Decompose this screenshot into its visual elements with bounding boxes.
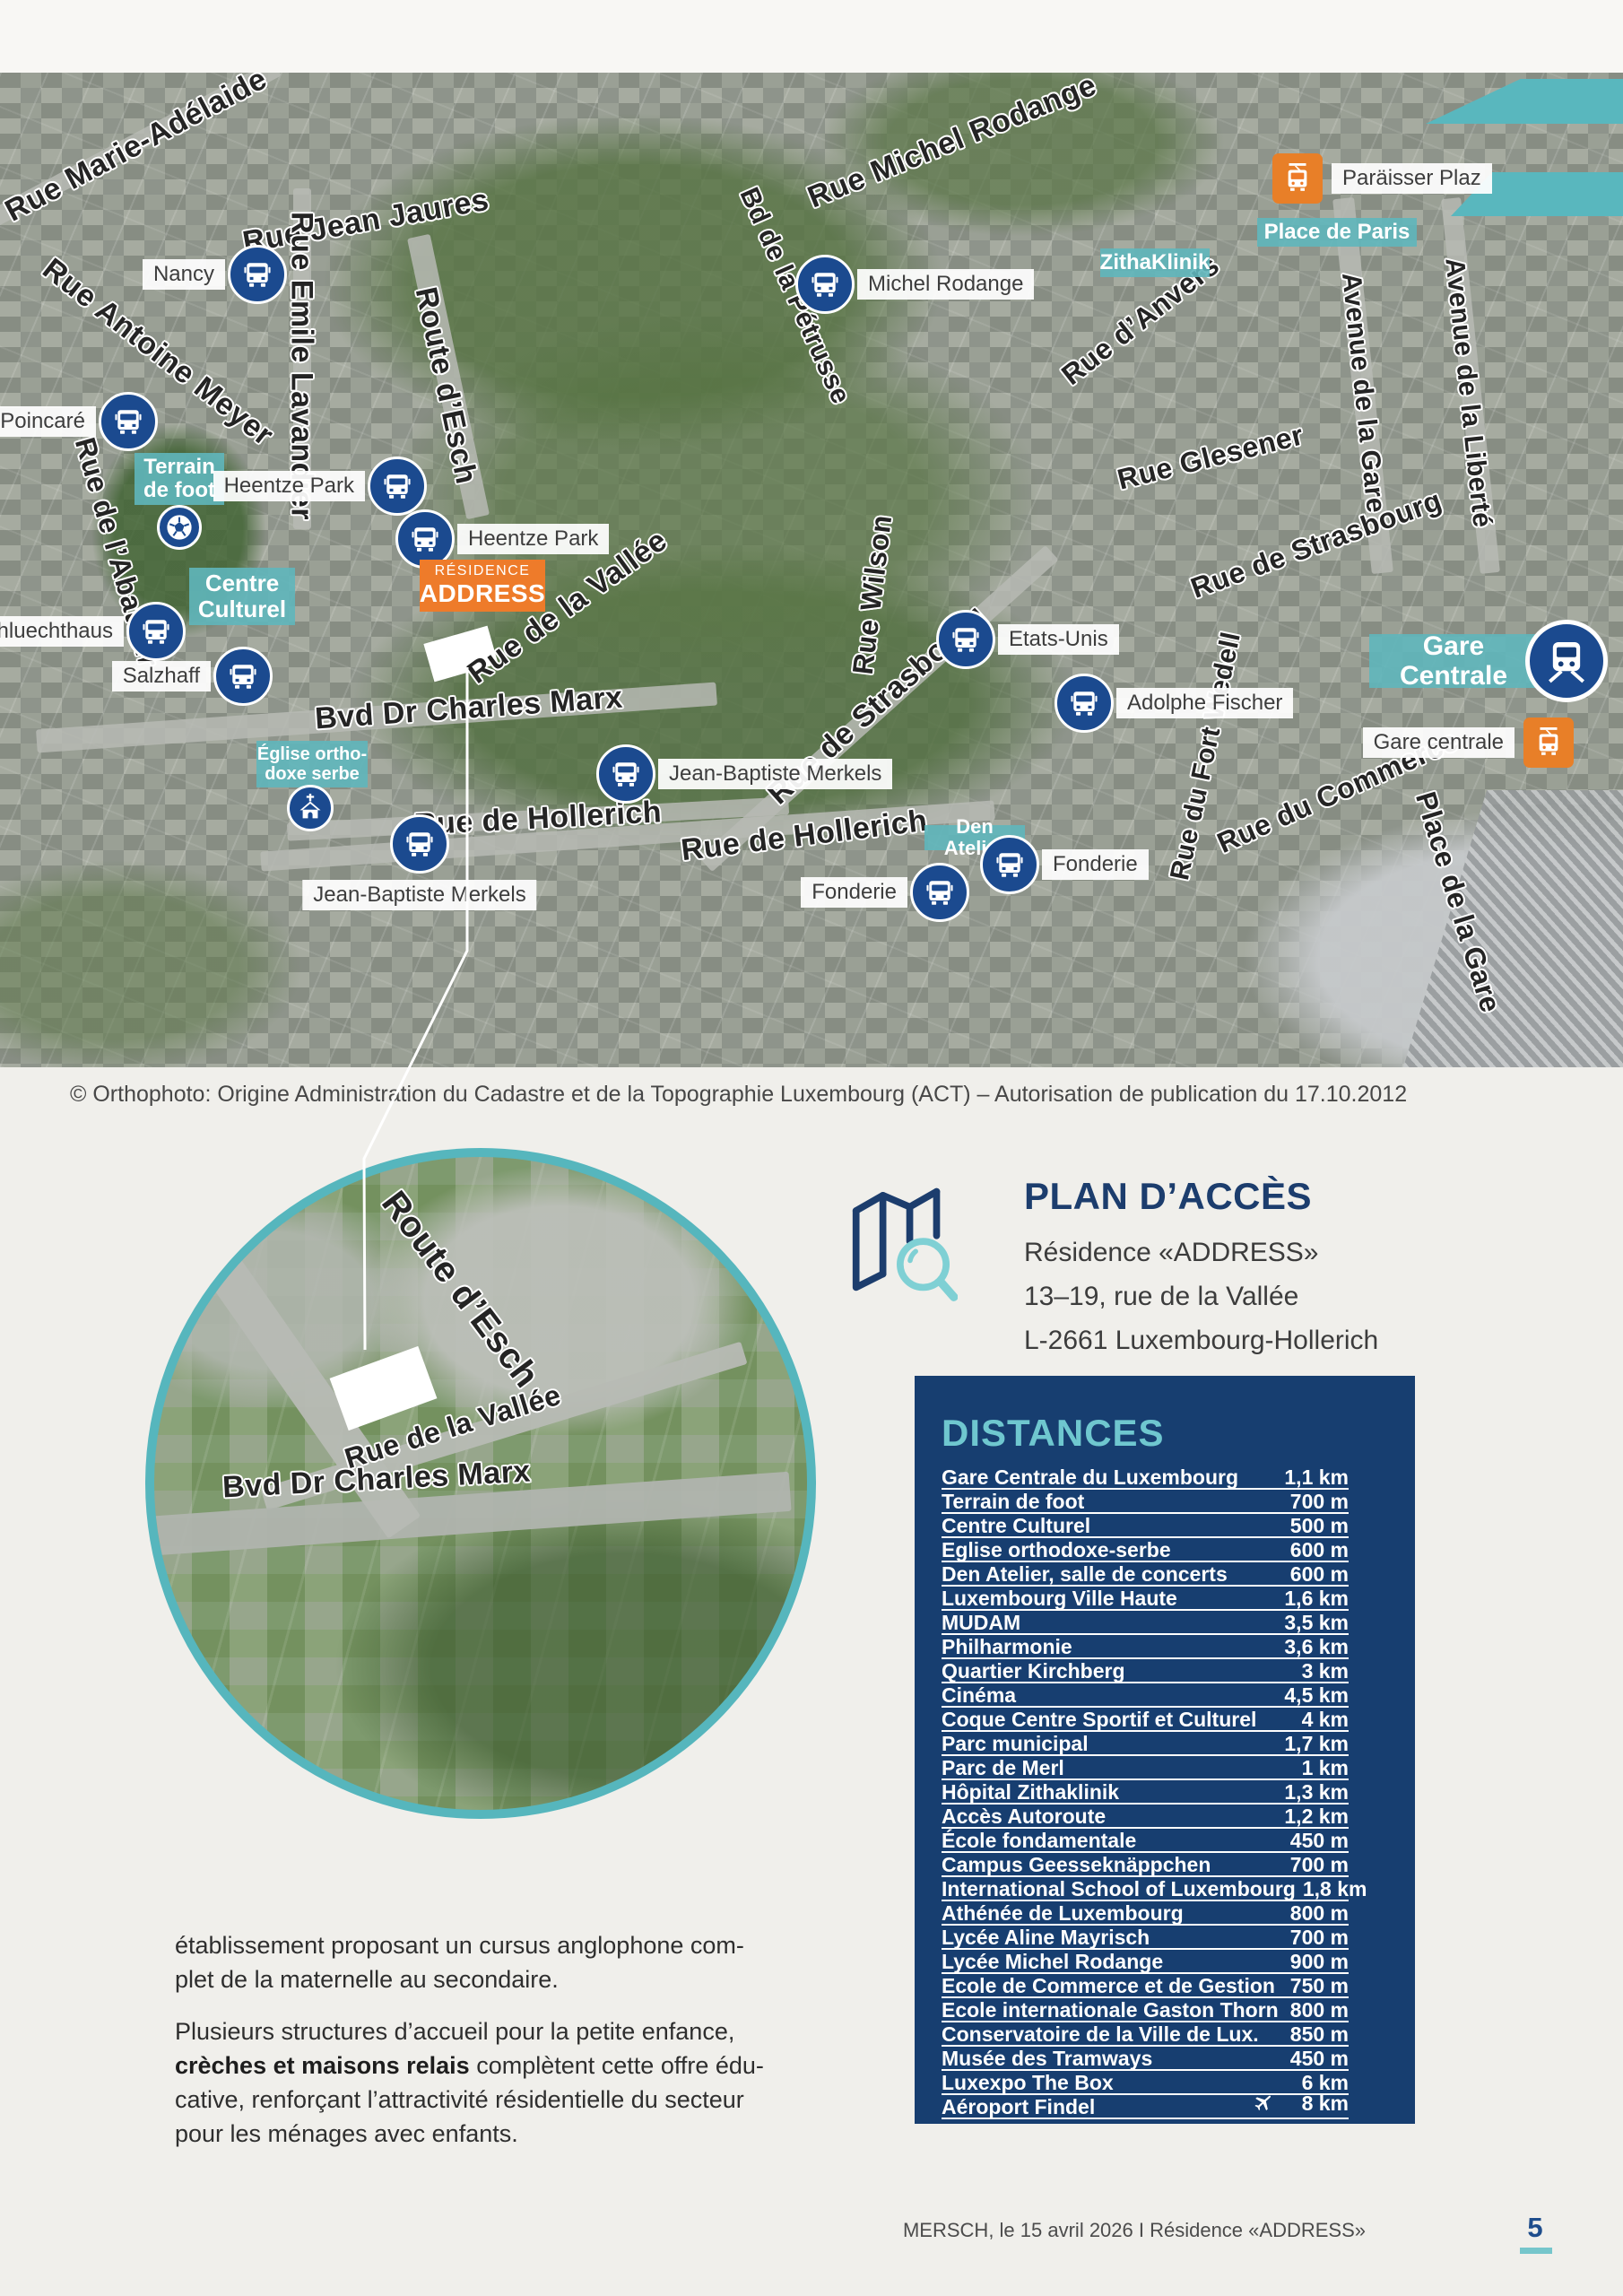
distances-panel: DISTANCES Gare Centrale du Luxembourg1,1… xyxy=(915,1376,1415,2124)
folded-map-icon xyxy=(846,1177,958,1307)
inset-zoom-map: Route d’EschRue de la ValléeBvd Dr Charl… xyxy=(145,1148,816,1819)
distance-row: International School of Luxembourg1,8 km xyxy=(942,1877,1349,1901)
distance-label: Luxexpo The Box xyxy=(942,2072,1114,2093)
church-icon xyxy=(294,792,326,824)
bus-stop-icon xyxy=(126,602,186,661)
address-line-residence: Résidence «ADDRESS» xyxy=(1024,1231,1378,1274)
distance-value: 700 m xyxy=(1290,1854,1349,1875)
stop-label: Nancy xyxy=(143,259,225,290)
brochure-page: RÉSIDENCE ADDRESS Rue Marie-AdélaideRue … xyxy=(0,0,1623,2296)
area-label-line: doxe serbe xyxy=(265,764,360,784)
bus-stop-icon xyxy=(99,392,158,451)
distance-label: Coque Centre Sportif et Culturel xyxy=(942,1709,1256,1730)
distances-table: Gare Centrale du Luxembourg1,1 kmTerrain… xyxy=(942,1465,1349,2119)
distance-row: Quartier Kirchberg3 km xyxy=(942,1659,1349,1683)
distance-row: Parc municipal1,7 km xyxy=(942,1732,1349,1756)
address-line-street: 13–19, rue de la Vallée xyxy=(1024,1274,1378,1318)
distance-row: Aéroport Findel 8 km xyxy=(942,2095,1349,2119)
distance-row: Terrain de foot700 m xyxy=(942,1490,1349,1514)
distance-value: 600 m xyxy=(1290,1563,1349,1585)
page-top-margin xyxy=(0,0,1623,73)
distance-label: Centre Culturel xyxy=(942,1515,1090,1536)
street-label-rue-jean-jaures: Rue Jean Jaures xyxy=(240,183,491,261)
bus-icon xyxy=(404,828,436,860)
teal-decor-shape xyxy=(1426,79,1623,124)
bus-icon xyxy=(950,623,982,656)
distance-label: Conservatoire de la Ville de Lux. xyxy=(942,2023,1259,2045)
tram-stop-icon xyxy=(1523,717,1574,768)
distance-value: 1,6 km xyxy=(1284,1587,1349,1609)
distance-label: Den Atelier, salle de concerts xyxy=(942,1563,1228,1585)
bus-icon xyxy=(112,405,144,438)
area-label-line: Terrain xyxy=(143,456,215,479)
distance-value: 3 km xyxy=(1302,1660,1349,1682)
bus-icon xyxy=(381,470,413,502)
distance-value: 1,8 km xyxy=(1303,1878,1367,1900)
distance-row: Lycée Aline Mayrisch700 m xyxy=(942,1926,1349,1950)
distance-label: Aéroport Findel xyxy=(942,2096,1095,2118)
area-label-centre-culturel: CentreCulturel xyxy=(189,568,295,625)
distance-label: Terrain de foot xyxy=(942,1491,1084,1512)
distance-label: École fondamentale xyxy=(942,1830,1136,1851)
distance-label: International School of Luxembourg xyxy=(942,1878,1296,1900)
plan-acces-title: PLAN D’ACCÈS xyxy=(1024,1175,1312,1218)
paragraph-line: Plusieurs structures d’accueil pour la p… xyxy=(175,2014,785,2048)
distance-row: École fondamentale450 m xyxy=(942,1829,1349,1853)
street-label-rue-wilson: Rue Wilson xyxy=(846,513,899,676)
paragraph-gap xyxy=(175,1996,785,2014)
distance-label: Ecole internationale Gaston Thorn xyxy=(942,1999,1279,2021)
area-label-gare-centrale: Gare Centrale xyxy=(1369,634,1538,688)
street-label-rue-de-strasbourg: Rue de Strasbourg xyxy=(1186,483,1446,605)
airplane-icon xyxy=(1252,2091,1275,2118)
tram-icon xyxy=(1280,161,1315,196)
bus-icon xyxy=(227,660,259,692)
train-poi xyxy=(1525,620,1608,702)
plan-acces-address: Résidence «ADDRESS» 13–19, rue de la Val… xyxy=(1024,1231,1378,1362)
distance-row: Athénée de Luxembourg800 m xyxy=(942,1901,1349,1926)
distance-row: Gare Centrale du Luxembourg1,1 km xyxy=(942,1465,1349,1490)
residence-site-building-inset xyxy=(330,1346,438,1431)
distance-label: Luxembourg Ville Haute xyxy=(942,1587,1177,1609)
distance-value: 800 m xyxy=(1290,1999,1349,2021)
distance-label: Musée des Tramways xyxy=(942,2048,1152,2069)
stop-label: Paräisser Plaz xyxy=(1332,163,1492,194)
paragraph-line: plet de la maternelle au secondaire. xyxy=(175,1962,785,1996)
bus-icon xyxy=(809,268,841,300)
bus-stop-icon xyxy=(390,814,449,874)
distance-label: Parc municipal xyxy=(942,1733,1089,1754)
distance-value: 1,3 km xyxy=(1284,1781,1349,1803)
street-label-avenue-de-la-libert: Avenue de la Liberté xyxy=(1438,257,1497,529)
bold-phrase: crèches et maisons relais xyxy=(175,2052,470,2079)
stop-label: Michel Rodange xyxy=(857,269,1034,300)
distance-value: 1,2 km xyxy=(1284,1805,1349,1827)
distance-value: 850 m xyxy=(1290,2023,1349,2045)
area-label-line: Église ortho- xyxy=(257,744,367,764)
stop-label: Schluechthaus xyxy=(0,616,124,647)
distance-row: Accès Autoroute1,2 km xyxy=(942,1805,1349,1829)
distance-row: Centre Culturel500 m xyxy=(942,1514,1349,1538)
distance-value: 1,7 km xyxy=(1284,1733,1349,1754)
street-label-rue-michel-rodange: Rue Michel Rodange xyxy=(803,73,1102,215)
paragraph-line: établissement proposant un cursus anglop… xyxy=(175,1928,785,1962)
distances-title: DISTANCES xyxy=(942,1412,1349,1455)
distance-value: 700 m xyxy=(1290,1491,1349,1512)
distance-label: Lycée Aline Mayrisch xyxy=(942,1926,1150,1948)
street-label-rue-glesener: Rue Glesener xyxy=(1115,418,1307,496)
bus-icon xyxy=(1068,687,1100,719)
distance-row: Philharmonie3,6 km xyxy=(942,1635,1349,1659)
distance-row: Coque Centre Sportif et Culturel4 km xyxy=(942,1708,1349,1732)
distance-value: 700 m xyxy=(1290,1926,1349,1948)
stop-label: Heentze Park xyxy=(457,524,609,554)
paragraph-line: cative, renforçant l’attractivité réside… xyxy=(175,2083,785,2117)
distance-label: Ecole de Commerce et de Gestion xyxy=(942,1975,1275,1996)
bus-stop-icon xyxy=(910,863,969,922)
paragraph-line: crèches et maisons relais complètent cet… xyxy=(175,2048,785,2083)
bus-icon xyxy=(140,615,172,648)
distance-value: 600 m xyxy=(1290,1539,1349,1561)
stop-label: Gare centrale xyxy=(1363,727,1515,758)
distance-value: 800 m xyxy=(1290,1902,1349,1924)
distance-row: Parc de Merl1 km xyxy=(942,1756,1349,1780)
orthophoto-copyright: © Orthophoto: Origine Administration du … xyxy=(70,1082,1407,1108)
distance-value: 500 m xyxy=(1290,1515,1349,1536)
distance-row: Cinéma4,5 km xyxy=(942,1683,1349,1708)
street-label-bvd-dr-charles-marx: Bvd Dr Charles Marx xyxy=(314,681,624,737)
distance-label: Cinéma xyxy=(942,1684,1016,1706)
bus-stop-icon xyxy=(980,835,1039,894)
distance-value: 1,1 km xyxy=(1284,1466,1349,1488)
distance-row: Ecole de Commerce et de Gestion750 m xyxy=(942,1974,1349,1998)
distance-value: 750 m xyxy=(1290,1975,1349,1996)
distance-value: 450 m xyxy=(1290,1830,1349,1851)
tram-stop-icon xyxy=(1272,153,1323,204)
bus-stop-icon xyxy=(936,610,995,669)
distance-row: Lycée Michel Rodange900 m xyxy=(942,1950,1349,1974)
stop-label: Adolphe Fischer xyxy=(1116,688,1293,718)
page-number-tick xyxy=(1520,2248,1552,2254)
distance-row: Conservatoire de la Ville de Lux.850 m xyxy=(942,2022,1349,2047)
football-poi xyxy=(157,505,202,550)
church-poi xyxy=(287,785,334,831)
distance-row: Eglise orthodoxe-serbe600 m xyxy=(942,1538,1349,1562)
distance-row: Musée des Tramways450 m xyxy=(942,2047,1349,2071)
distance-value: 900 m xyxy=(1290,1951,1349,1972)
distance-value: 3,5 km xyxy=(1284,1612,1349,1633)
aerial-map: RÉSIDENCE ADDRESS Rue Marie-AdélaideRue … xyxy=(0,73,1623,1067)
street-label-rue-marie-ad-laide: Rue Marie-Adélaide xyxy=(0,73,273,229)
address-line-city: L-2661 Luxembourg-Hollerich xyxy=(1024,1318,1378,1362)
page-number: 5 xyxy=(1515,2212,1555,2244)
bus-icon xyxy=(610,758,642,790)
distance-row: Ecole internationale Gaston Thorn800 m xyxy=(942,1998,1349,2022)
bus-stop-icon xyxy=(213,647,273,706)
distance-row: Campus Geesseknäppchen700 m xyxy=(942,1853,1349,1877)
bus-stop-icon xyxy=(228,245,287,304)
street-label-avenue-de-la-gare: Avenue de la Gare xyxy=(1335,271,1391,514)
area-label-place-de-paris: Place de Paris xyxy=(1257,218,1417,247)
residence-address-label: RÉSIDENCE ADDRESS xyxy=(420,560,545,612)
area-label-line: Gare Centrale xyxy=(1369,631,1538,691)
tram-icon xyxy=(1531,725,1567,761)
bus-icon xyxy=(994,848,1026,881)
distance-label: Eglise orthodoxe-serbe xyxy=(942,1539,1171,1561)
distance-value: 1 km xyxy=(1302,1757,1349,1779)
distance-label: Lycée Michel Rodange xyxy=(942,1951,1163,1972)
distance-label: Athénée de Luxembourg xyxy=(942,1902,1184,1924)
stop-label: Fonderie xyxy=(801,877,907,908)
residence-label-line2: ADDRESS xyxy=(420,579,545,608)
airplane-icon xyxy=(1252,2091,1275,2114)
distance-label: Hôpital Zithaklinik xyxy=(942,1781,1119,1803)
bus-stop-icon xyxy=(1055,674,1114,733)
area-label-eglise-orthodoxe-serbe: Église ortho-doxe serbe xyxy=(256,741,368,787)
distance-row: Den Atelier, salle de concerts600 m xyxy=(942,1562,1349,1587)
stop-label: Poincaré xyxy=(0,406,96,437)
bus-icon xyxy=(924,876,956,909)
distance-value: 4 km xyxy=(1302,1709,1349,1730)
footer-text: MERSCH, le 15 avril 2026 I Résidence «AD… xyxy=(903,2219,1366,2242)
train-icon xyxy=(1541,636,1592,686)
football-icon xyxy=(162,510,196,544)
stop-label: Jean-Baptiste Merkels xyxy=(658,759,892,789)
residence-label-line1: RÉSIDENCE xyxy=(435,563,531,579)
street-label-route-d-esch: Route d’Esch xyxy=(408,284,484,487)
distance-row: Hôpital Zithaklinik1,3 km xyxy=(942,1780,1349,1805)
distance-label: Philharmonie xyxy=(942,1636,1072,1657)
distance-value: 8 km xyxy=(1252,2091,1349,2118)
area-label-line: Centre xyxy=(205,570,279,596)
distance-label: MUDAM xyxy=(942,1612,1020,1633)
area-label-line: Culturel xyxy=(198,596,286,622)
distance-row: Luxembourg Ville Haute1,6 km xyxy=(942,1587,1349,1611)
distance-value: 4,5 km xyxy=(1284,1684,1349,1706)
body-text: établissement proposant un cursus anglop… xyxy=(175,1928,785,2151)
stop-label: Jean-Baptiste Merkels xyxy=(302,880,536,910)
bus-stop-icon xyxy=(795,255,855,314)
stop-label: Etats-Unis xyxy=(998,624,1119,655)
bus-stop-icon xyxy=(596,744,655,804)
distance-label: Campus Geesseknäppchen xyxy=(942,1854,1211,1875)
stop-label: Salzhaff xyxy=(112,661,211,691)
area-label-line: ZithaKlinik xyxy=(1100,251,1211,274)
distance-label: Quartier Kirchberg xyxy=(942,1660,1125,1682)
distance-label: Parc de Merl xyxy=(942,1757,1064,1779)
distance-value: 450 m xyxy=(1290,2048,1349,2069)
bus-stop-icon xyxy=(368,457,427,516)
distance-row: MUDAM3,5 km xyxy=(942,1611,1349,1635)
area-label-line: Place de Paris xyxy=(1264,221,1410,244)
stop-label: Heentze Park xyxy=(213,471,365,501)
area-label-terrain-de-foot: Terrainde foot xyxy=(135,453,224,505)
distance-value: 3,6 km xyxy=(1284,1636,1349,1657)
stop-label: Fonderie xyxy=(1042,849,1149,880)
area-label-line: de foot xyxy=(143,479,215,502)
bus-icon xyxy=(241,258,273,291)
area-label-zithaklinik: ZithaKlinik xyxy=(1100,248,1210,277)
distance-label: Accès Autoroute xyxy=(942,1805,1106,1827)
paragraph-line: pour les ménages avec enfants. xyxy=(175,2117,785,2151)
bus-icon xyxy=(409,523,441,555)
distance-label: Gare Centrale du Luxembourg xyxy=(942,1466,1238,1488)
